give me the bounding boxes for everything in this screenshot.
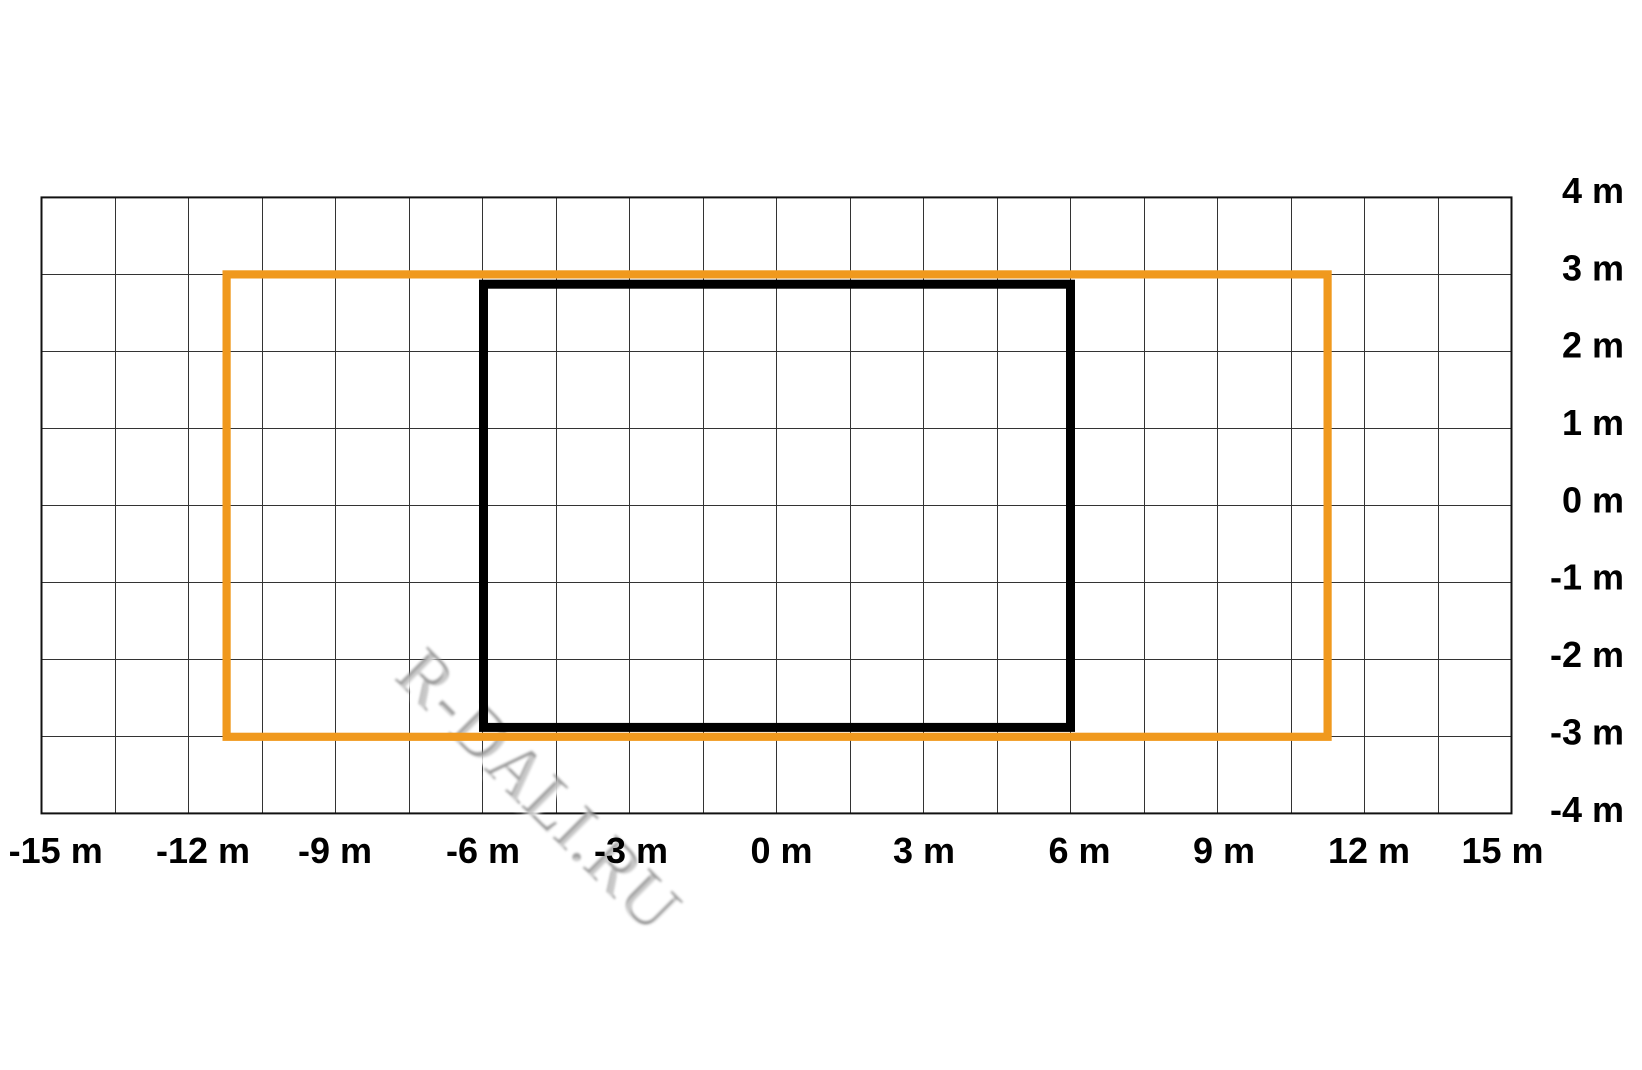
svg-text:-12 m: -12 m bbox=[156, 830, 250, 871]
svg-text:0 m: 0 m bbox=[750, 830, 812, 871]
svg-text:-1 m: -1 m bbox=[1550, 557, 1624, 598]
svg-text:15 m: 15 m bbox=[1461, 830, 1543, 871]
svg-text:1 m: 1 m bbox=[1562, 402, 1624, 443]
svg-text:3 m: 3 m bbox=[893, 830, 955, 871]
svg-text:-6 m: -6 m bbox=[446, 830, 520, 871]
svg-text:-4 m: -4 m bbox=[1550, 789, 1624, 830]
svg-text:3 m: 3 m bbox=[1562, 247, 1624, 288]
svg-text:-9 m: -9 m bbox=[298, 830, 372, 871]
svg-text:0 m: 0 m bbox=[1562, 479, 1624, 520]
svg-text:-2 m: -2 m bbox=[1550, 634, 1624, 675]
svg-text:2 m: 2 m bbox=[1562, 325, 1624, 366]
svg-text:9 m: 9 m bbox=[1193, 830, 1255, 871]
svg-text:-3 m: -3 m bbox=[1550, 711, 1624, 752]
svg-text:-3 m: -3 m bbox=[594, 830, 668, 871]
svg-text:12 m: 12 m bbox=[1328, 830, 1410, 871]
svg-text:4 m: 4 m bbox=[1562, 170, 1624, 211]
svg-text:6 m: 6 m bbox=[1048, 830, 1110, 871]
svg-text:-15 m: -15 m bbox=[9, 830, 103, 871]
